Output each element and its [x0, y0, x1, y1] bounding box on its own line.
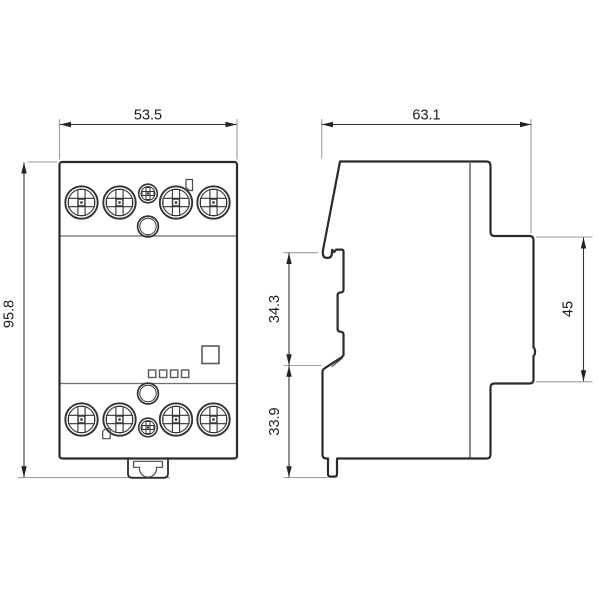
dimension-label-rear-height: 45: [561, 301, 577, 317]
technical-drawing: 53.5 63.1 95.8 34.3 33.9: [0, 0, 600, 600]
front-view: [60, 162, 238, 478]
dimension-label-lower-rail-offset: 33.9: [267, 407, 283, 435]
dimension-side-depth: 63.1: [322, 108, 531, 128]
dimension-label-side-depth: 63.1: [412, 108, 440, 124]
din-clip-tab: [128, 459, 168, 478]
dimension-front-height: 95.8: [2, 163, 27, 478]
dimension-label-upper-rail-offset: 34.3: [267, 295, 283, 323]
dimension-rear-height: 45: [561, 238, 587, 382]
dimension-front-width: 53.5: [60, 108, 237, 128]
aux-screw: [139, 184, 158, 203]
drawing-svg: 53.5 63.1 95.8 34.3 33.9: [0, 0, 600, 600]
dimension-label-front-height: 95.8: [2, 300, 18, 328]
dimension-lower-rail-offset: 33.9: [267, 366, 292, 478]
side-outline: [323, 162, 536, 477]
side-view: [323, 162, 536, 477]
aux-screw: [139, 418, 158, 437]
dimension-label-front-width: 53.5: [134, 108, 162, 124]
dimension-upper-rail-offset: 34.3: [267, 253, 292, 365]
